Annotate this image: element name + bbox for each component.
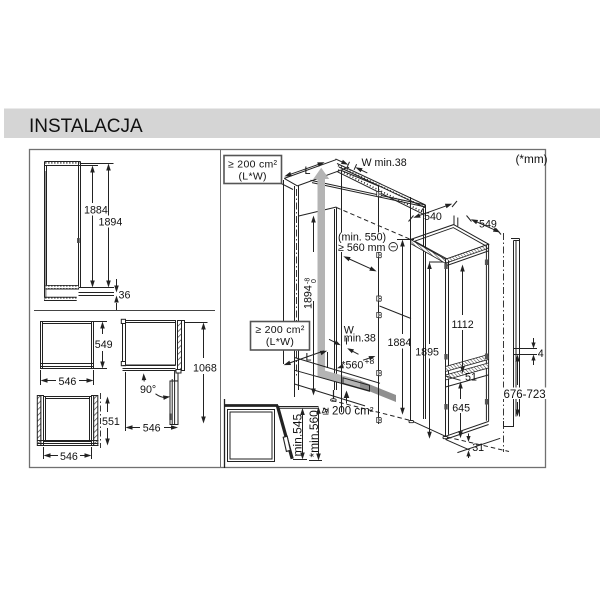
svg-text:min.38: min.38 [344,332,376,344]
svg-text:551: 551 [102,416,120,428]
svg-text:(*mm): (*mm) [516,152,548,166]
svg-text:≥ 560 mm: ≥ 560 mm [338,242,386,254]
svg-text:≥ 200 cm²: ≥ 200 cm² [228,159,278,171]
svg-text:36: 36 [119,290,131,302]
svg-text:1895: 1895 [415,346,439,358]
svg-text:min.545: min.545 [291,413,305,456]
svg-text:51: 51 [465,372,477,384]
svg-text:≥ 200 cm²: ≥ 200 cm² [323,405,374,417]
svg-text:W min.38: W min.38 [362,157,407,169]
svg-text:0: 0 [311,279,318,283]
svg-text:(L*W): (L*W) [266,336,294,348]
svg-text:546: 546 [143,422,161,434]
svg-text:1894: 1894 [303,285,315,309]
svg-text:1068: 1068 [193,363,217,375]
svg-text:(L*W): (L*W) [239,171,267,183]
svg-text:1884: 1884 [84,204,108,216]
svg-text:549: 549 [479,219,497,231]
svg-text:L: L [305,165,311,177]
svg-text:676-723: 676-723 [504,389,546,401]
svg-text:1894: 1894 [99,216,123,228]
svg-text:*560: *560 [341,360,363,372]
svg-text:90°: 90° [140,384,156,396]
svg-text:INSTALACJA: INSTALACJA [29,116,143,137]
svg-text:549: 549 [95,339,113,351]
svg-text:645: 645 [452,403,470,415]
svg-text:1112: 1112 [452,319,474,331]
svg-text:540: 540 [424,211,442,223]
svg-text:4: 4 [538,348,544,360]
svg-text:1884: 1884 [388,337,412,349]
svg-text:≥ 200 cm²: ≥ 200 cm² [255,324,305,336]
svg-text:*min.560: *min.560 [307,410,321,458]
svg-text:546: 546 [60,451,78,463]
svg-text:-8: -8 [305,278,312,284]
svg-text:546: 546 [59,376,77,388]
